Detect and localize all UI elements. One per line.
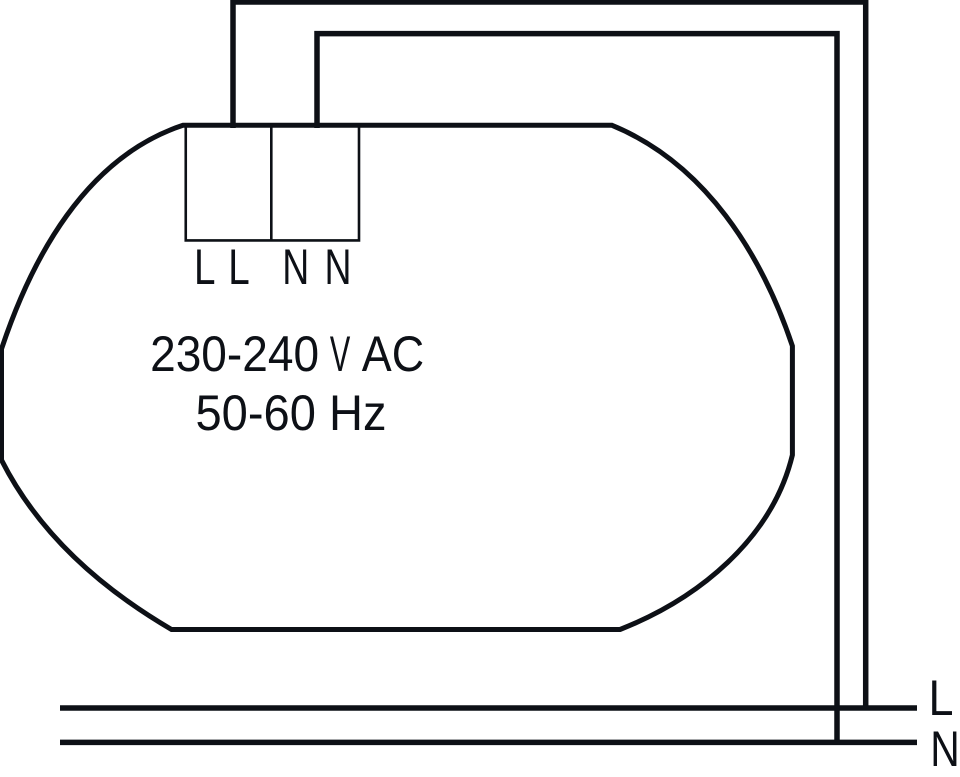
svg-text:N: N — [282, 238, 309, 295]
svg-text:L: L — [194, 238, 216, 295]
svg-text:L: L — [228, 238, 250, 295]
svg-text:50-60 Hz: 50-60 Hz — [196, 384, 387, 441]
svg-text:V: V — [330, 325, 351, 382]
svg-text:230-240: 230-240 — [150, 325, 319, 382]
svg-text:L: L — [929, 669, 954, 726]
svg-text:AC: AC — [362, 325, 424, 382]
svg-text:N: N — [325, 238, 352, 295]
svg-text:N: N — [930, 720, 960, 777]
